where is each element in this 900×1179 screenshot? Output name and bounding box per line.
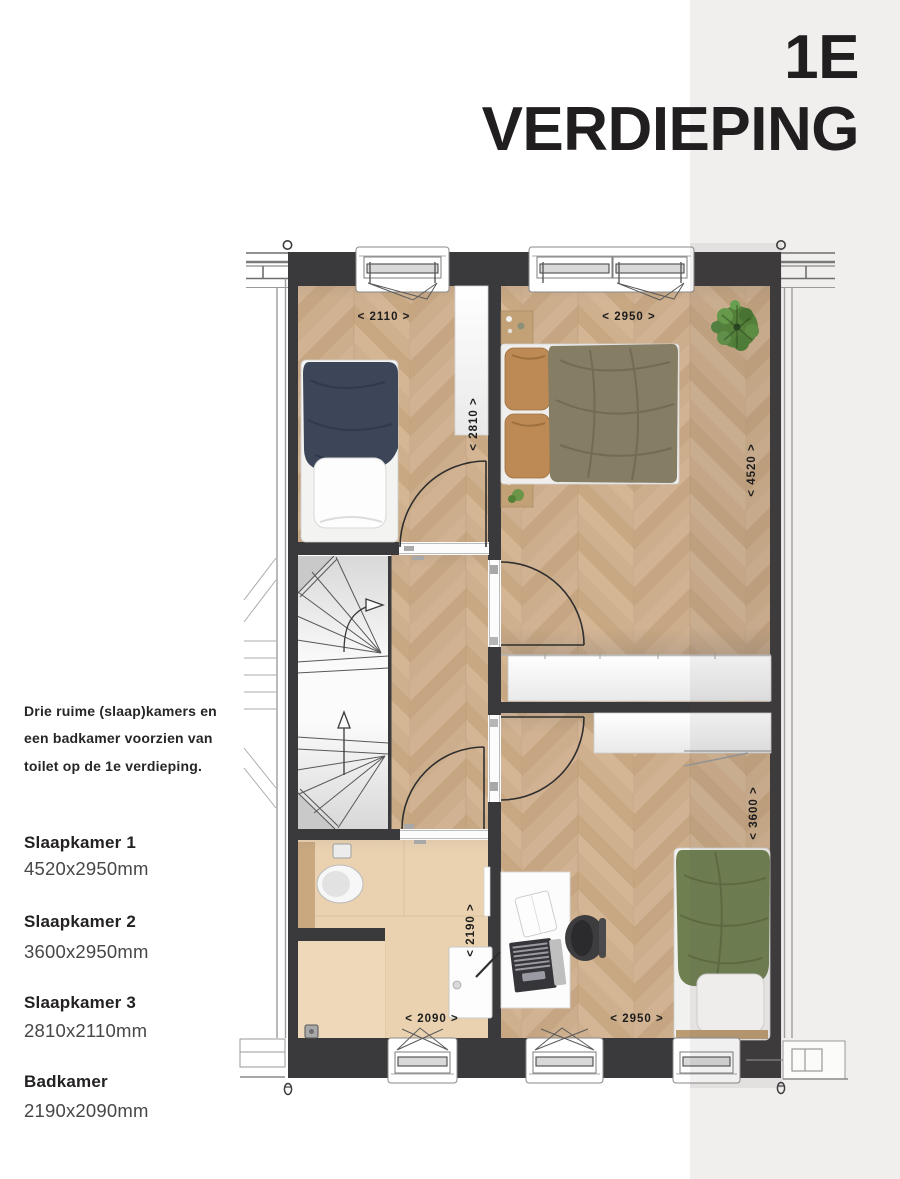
svg-text:< 2190 >: < 2190 > bbox=[465, 903, 477, 956]
svg-text:< 2950 >: < 2950 > bbox=[602, 311, 655, 323]
svg-text:< 3600 >: < 3600 > bbox=[748, 786, 760, 839]
svg-text:< 4520 >: < 4520 > bbox=[746, 443, 758, 496]
svg-text:< 2110 >: < 2110 > bbox=[358, 311, 411, 323]
svg-text:< 2810 >: < 2810 > bbox=[468, 397, 480, 450]
svg-text:< 2090 >: < 2090 > bbox=[405, 1013, 458, 1025]
svg-text:< 2950 >: < 2950 > bbox=[610, 1013, 663, 1025]
